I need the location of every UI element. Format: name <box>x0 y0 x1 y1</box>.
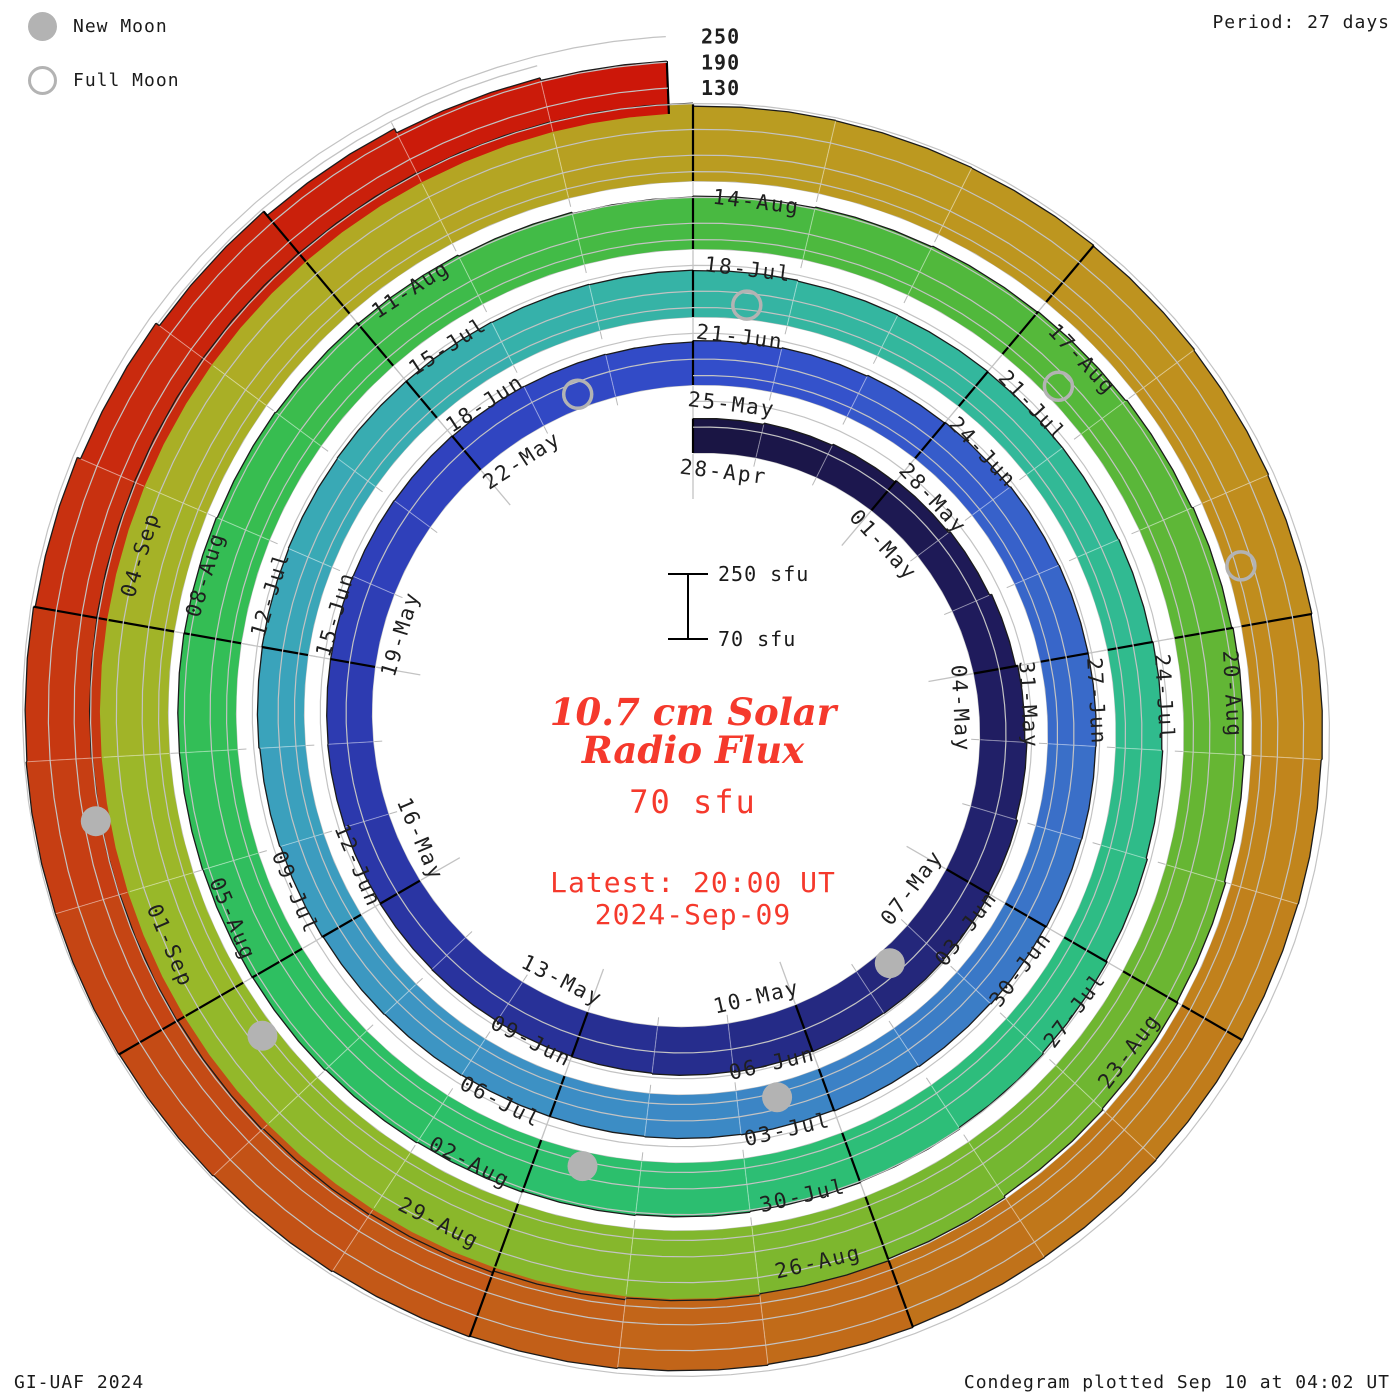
new-moon-marker <box>762 1082 792 1112</box>
chart-title-line1: 10.7 cm Solar <box>393 694 993 732</box>
condegram-page: { "header": { "period": "Period: 27 days… <box>0 0 1400 1400</box>
legend-new-moon: New Moon <box>28 12 168 41</box>
svg-text:25-May: 25-May <box>687 387 777 421</box>
svg-text:27-Jun: 27-Jun <box>1082 657 1111 746</box>
legend-full-moon: Full Moon <box>28 66 180 95</box>
full-moon-icon <box>28 66 57 95</box>
new-moon-marker <box>875 948 905 978</box>
svg-text:190: 190 <box>701 50 740 74</box>
chart-title: 10.7 cm Solar Radio Flux <box>393 694 993 769</box>
full-moon-label: Full Moon <box>73 70 180 91</box>
current-flux-value: 70 sfu <box>393 783 993 821</box>
latest-time: Latest: 20:00 UT <box>393 867 993 898</box>
svg-text:250: 250 <box>701 25 740 49</box>
plotted-timestamp: Condegram plotted Sep 10 at 04:02 UT <box>964 1372 1390 1393</box>
scale-bar-top-label: 250 sfu <box>718 562 809 586</box>
scale-bar-bottom-label: 70 sfu <box>718 627 796 651</box>
radial-axis-labels: 250190130 <box>701 25 740 101</box>
scale-bar-bottom-cap <box>668 638 708 640</box>
new-moon-label: New Moon <box>73 16 168 37</box>
scale-bar-top-cap <box>668 573 708 575</box>
svg-text:20-Aug: 20-Aug <box>1218 650 1247 739</box>
chart-title-line2: Radio Flux <box>393 732 993 770</box>
new-moon-icon <box>28 12 57 41</box>
new-moon-marker <box>81 806 111 836</box>
credit-label: GI-UAF 2024 <box>14 1372 144 1393</box>
svg-text:24-Jul: 24-Jul <box>1150 653 1179 742</box>
svg-text:31-May: 31-May <box>1014 661 1043 750</box>
latest-date: 2024-Sep-09 <box>393 899 993 930</box>
latest-reading: Latest: 20:00 UT 2024-Sep-09 <box>393 867 993 930</box>
new-moon-marker <box>247 1021 277 1051</box>
period-label: Period: 27 days <box>1212 12 1390 33</box>
svg-text:130: 130 <box>701 76 740 100</box>
center-annotation: 10.7 cm Solar Radio Flux 70 sfu Latest: … <box>393 694 993 930</box>
scale-bar-line <box>687 574 689 640</box>
new-moon-marker <box>568 1151 598 1181</box>
